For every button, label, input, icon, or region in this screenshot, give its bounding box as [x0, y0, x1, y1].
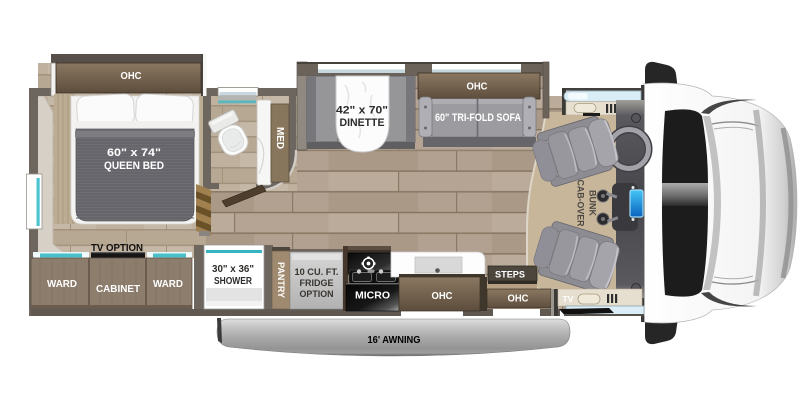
svg-text:42" x 70": 42" x 70": [336, 105, 388, 117]
svg-text:WARD: WARD: [153, 279, 183, 290]
svg-text:WARD: WARD: [47, 279, 77, 290]
svg-text:MED: MED: [274, 127, 285, 149]
svg-text:CAB-OVER: CAB-OVER: [575, 180, 586, 227]
svg-text:PANTRY: PANTRY: [275, 262, 286, 299]
svg-text:CABINET: CABINET: [96, 284, 140, 295]
svg-text:STEPS: STEPS: [495, 270, 525, 281]
svg-text:SHOWER: SHOWER: [214, 276, 253, 287]
svg-text:10 CU. FT.: 10 CU. FT.: [295, 267, 339, 278]
svg-text:16' AWNING: 16' AWNING: [368, 334, 421, 346]
svg-text:OHC: OHC: [432, 290, 453, 302]
svg-text:TV: TV: [563, 294, 574, 304]
svg-text:60" TRI-FOLD SOFA: 60" TRI-FOLD SOFA: [435, 112, 521, 124]
svg-text:MICRO: MICRO: [355, 290, 390, 302]
svg-text:BUNK: BUNK: [587, 190, 598, 216]
svg-text:DINETTE: DINETTE: [340, 117, 385, 129]
svg-text:30" x 36": 30" x 36": [212, 264, 254, 275]
svg-text:FRIDGE: FRIDGE: [300, 278, 334, 289]
svg-text:OHC: OHC: [467, 81, 488, 93]
svg-text:OHC: OHC: [121, 70, 142, 82]
svg-text:QUEEN BED: QUEEN BED: [104, 160, 164, 172]
svg-text:60" x 74": 60" x 74": [107, 147, 161, 159]
svg-text:OHC: OHC: [508, 293, 529, 305]
svg-text:OPTION: OPTION: [300, 289, 334, 300]
